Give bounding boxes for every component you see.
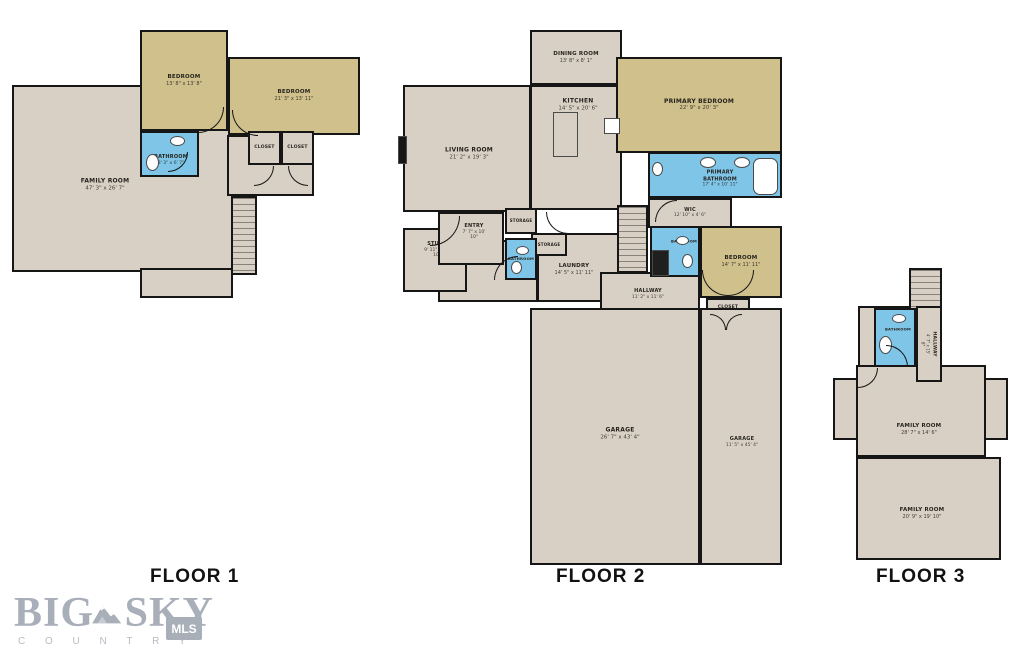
sink-fixture xyxy=(734,157,750,168)
room-closet: CLOSET xyxy=(248,131,281,165)
room-name-label: BEDROOM xyxy=(166,74,202,81)
room-name-label: HALLWAY xyxy=(931,331,937,356)
room-name-label: HALLWAY xyxy=(632,288,664,295)
sink-fixture xyxy=(516,246,529,255)
room-closet: CLOSET xyxy=(281,131,314,165)
bathtub-fixture xyxy=(753,158,778,195)
mountain-icon xyxy=(88,593,131,635)
big-sky-country-mls-logo: BIG SKY C O U N T R Y MLS xyxy=(14,592,214,650)
room-dimensions-label: 26' 7" x 43' 4" xyxy=(600,434,639,441)
sink-fixture xyxy=(170,136,185,146)
logo-big-text: BIG xyxy=(14,594,94,632)
room-dimensions-label: 21' 2" x 19' 3" xyxy=(445,154,493,161)
room-dimensions-label: 28' 7" x 14' 6" xyxy=(897,430,942,437)
sink-fixture xyxy=(676,236,689,245)
mls-badge: MLS xyxy=(166,617,202,640)
room-hallway: HALLWAY11' 2" x 11' 6" xyxy=(600,272,700,310)
floor-2-label: FLOOR 2 xyxy=(556,566,645,588)
room-name-label: GARAGE xyxy=(726,436,758,443)
room-dimensions-label: 11' 5" x 45' 4" xyxy=(726,442,758,448)
room-name-label: FAMILY ROOM xyxy=(900,507,945,514)
room-dimensions-label: 21' 3" x 13' 11" xyxy=(275,96,314,103)
kitchen-island-fixture xyxy=(553,112,578,157)
room-dimensions-label: 22' 9" x 20' 3" xyxy=(664,105,734,112)
sink-fixture xyxy=(892,314,906,323)
room-name-label: CLOSET xyxy=(254,145,274,151)
room-name-label: BEDROOM xyxy=(275,89,314,96)
room-storage: STORAGE xyxy=(505,208,537,234)
sink-fixture xyxy=(700,157,716,168)
room-name-label: BEDROOM xyxy=(722,255,761,262)
room-name-label: FAMILY ROOM xyxy=(81,178,130,186)
room-name-label: DINING ROOM xyxy=(553,51,599,58)
room-name-label: LAUNDRY xyxy=(555,263,594,270)
room-name-label: ENTRY xyxy=(460,223,488,230)
room-name-label: GARAGE xyxy=(600,427,639,435)
toilet-fixture xyxy=(146,154,159,171)
toilet-fixture xyxy=(682,254,693,268)
door-swing-icon xyxy=(546,212,568,234)
fireplace-fixture xyxy=(398,136,407,164)
floorplan-canvas: FAMILY ROOM47' 3" x 26' 7"BEDROOM13' 8" … xyxy=(0,0,1024,655)
room-dimensions-label: 4' 7" x 15' 8" xyxy=(921,331,931,356)
room-name-label: WIC xyxy=(674,207,706,214)
room-garage: GARAGE26' 7" x 43' 4" xyxy=(530,308,700,565)
room-name-label: STORAGE xyxy=(538,242,561,247)
room-name-label: PRIMARY BATHROOM xyxy=(690,170,750,183)
room-name-label: STORAGE xyxy=(510,218,533,223)
room-living-room: LIVING ROOM21' 2" x 19' 3" xyxy=(403,85,531,212)
room-family-room: FAMILY ROOM20' 9" x 19' 10" xyxy=(856,457,1001,560)
room-dimensions-label: 20' 9" x 19' 10" xyxy=(900,514,945,521)
room-dimensions-label: 47' 3" x 26' 7" xyxy=(81,185,130,192)
floor-3-label: FLOOR 3 xyxy=(876,566,965,588)
room-name-label: FAMILY ROOM xyxy=(897,423,942,430)
room-name-label: PRIMARY BEDROOM xyxy=(664,98,734,106)
stairs xyxy=(231,196,257,275)
room-dimensions-label: 17' 4" x 10' 11" xyxy=(690,183,750,189)
room-dimensions-label: 11' 2" x 11' 6" xyxy=(632,294,664,300)
room-dimensions-label: 14' 7" x 11' 11" xyxy=(722,262,761,269)
room-dining-room: DINING ROOM13' 8" x 8' 1" xyxy=(530,30,622,85)
room-dimensions-label: 12' 10" x 4' 6" xyxy=(674,213,706,219)
room-dimensions-label: 7' 7" x 10' 10" xyxy=(460,229,488,241)
stairs xyxy=(617,205,648,273)
room-garage: GARAGE11' 5" x 45' 4" xyxy=(700,308,782,565)
floor-1-label: FLOOR 1 xyxy=(150,566,239,588)
room-primary-bedroom: PRIMARY BEDROOM22' 9" x 20' 3" xyxy=(616,57,782,153)
shower-fixture xyxy=(652,250,669,276)
toilet-fixture xyxy=(652,162,663,176)
room-dimensions-label: 13' 8" x 13' 8" xyxy=(166,81,202,88)
room-dimensions-label: 13' 8" x 8' 1" xyxy=(553,58,599,65)
stove-fixture xyxy=(604,118,620,134)
room-name-label: KITCHEN xyxy=(558,98,597,106)
floor-area xyxy=(140,268,233,298)
room-dimensions-label: 14' 5" x 11' 11" xyxy=(555,270,594,277)
room-name-label: CLOSET xyxy=(287,145,307,151)
room-name-label: LIVING ROOM xyxy=(445,147,493,155)
room-name-label: BATHROOM xyxy=(885,328,911,333)
room-hallway: HALLWAY4' 7" x 15' 8" xyxy=(916,306,942,382)
floor-area xyxy=(984,378,1008,440)
